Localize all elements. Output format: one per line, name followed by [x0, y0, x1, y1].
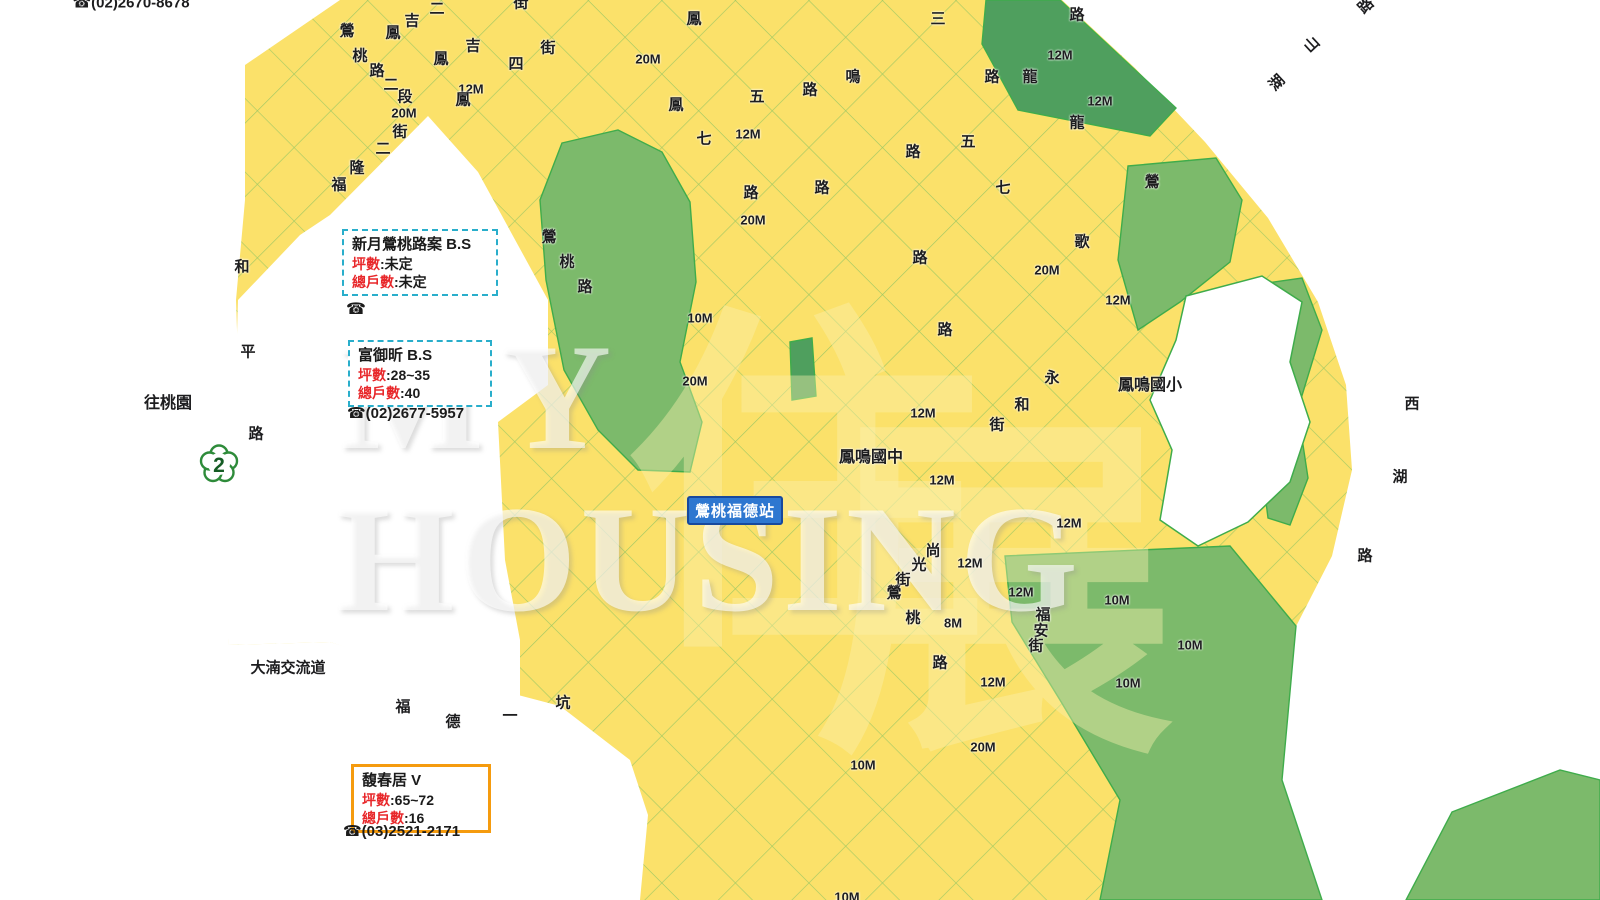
phone-icon: ☎ [346, 299, 366, 319]
field-label: 總戶數 [358, 385, 400, 401]
field-label: 坪數 [352, 256, 380, 272]
shield-route-number: 2 [213, 454, 225, 477]
field-value: 未定 [385, 256, 413, 272]
project-infobox-2[interactable]: 富御昕 B.S 坪數:28~35 總戶數:40 [348, 340, 492, 407]
field-label: 總戶數 [352, 274, 394, 290]
project-title: 富御昕 B.S [358, 346, 482, 366]
project-phone: ☎(02)2677-5957 [347, 404, 464, 422]
map-canvas [0, 0, 1600, 900]
field-label: 坪數 [358, 367, 386, 383]
project-title: 馥春居 V [362, 771, 480, 791]
field-value: 未定 [399, 274, 427, 290]
zoning-map-stage: 住 展 MY HOUSING ☎(02)2670-8678鶯桃路二段20M12M… [0, 0, 1600, 900]
station-label-yingtao-fude: 鶯桃福德站 [687, 496, 783, 525]
freeway-2-shield: 2 [199, 443, 239, 490]
field-label: 坪數 [362, 792, 390, 808]
project-title: 新月鶯桃路案 B.S [352, 235, 488, 255]
field-value: 40 [405, 385, 421, 401]
project-infobox-1[interactable]: 新月鶯桃路案 B.S 坪數:未定 總戶數:未定 [342, 229, 498, 296]
field-value: 65~72 [395, 792, 434, 808]
field-value: 28~35 [391, 367, 430, 383]
project-phone: ☎(03)2521-2171 [343, 822, 460, 840]
